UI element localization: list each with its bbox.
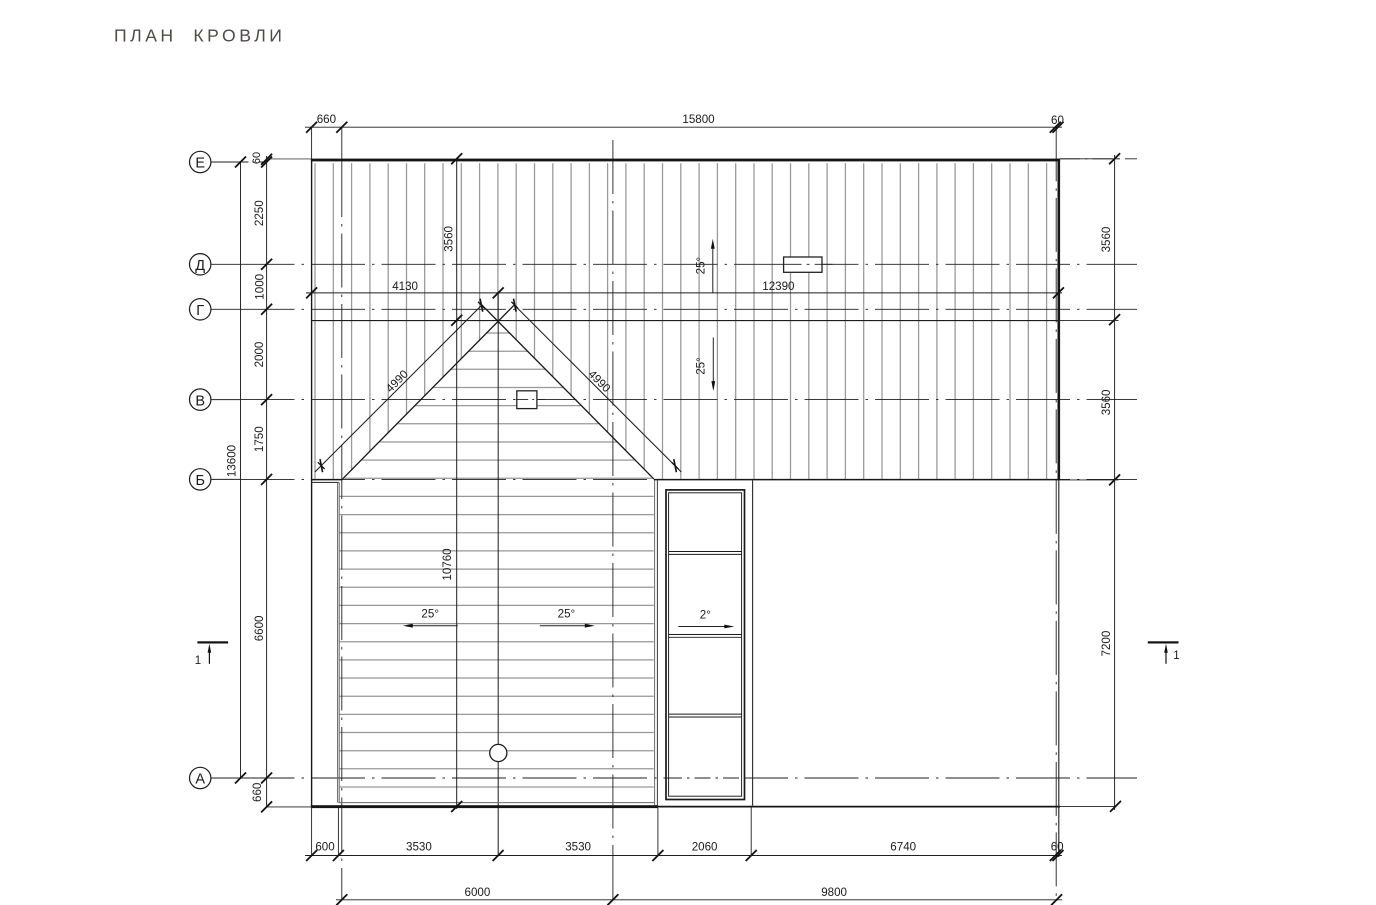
svg-text:1: 1 (195, 655, 201, 667)
svg-text:60: 60 (251, 152, 263, 164)
svg-text:3560: 3560 (1100, 390, 1113, 416)
svg-text:Д: Д (195, 258, 205, 274)
svg-text:7200: 7200 (1100, 631, 1113, 657)
svg-text:3530: 3530 (406, 841, 432, 854)
svg-text:2060: 2060 (692, 841, 718, 854)
svg-text:Б: Б (195, 473, 205, 489)
svg-text:15800: 15800 (682, 113, 714, 126)
svg-text:3560: 3560 (443, 226, 456, 252)
svg-text:10760: 10760 (441, 548, 454, 580)
svg-text:В: В (195, 393, 205, 409)
svg-text:25°: 25° (421, 607, 439, 620)
svg-text:4130: 4130 (392, 280, 418, 293)
svg-text:6600: 6600 (253, 616, 266, 642)
svg-text:2250: 2250 (253, 200, 266, 226)
svg-text:600: 600 (315, 841, 334, 854)
svg-text:12390: 12390 (762, 280, 794, 293)
svg-text:2°: 2° (700, 609, 711, 622)
svg-text:ПЛАН КРОВЛИ: ПЛАН КРОВЛИ (114, 26, 285, 46)
svg-text:6740: 6740 (890, 841, 916, 854)
svg-text:1000: 1000 (254, 274, 267, 300)
svg-text:660: 660 (251, 783, 264, 802)
svg-text:9800: 9800 (821, 886, 847, 899)
svg-text:А: А (195, 772, 205, 788)
svg-text:25°: 25° (695, 257, 708, 275)
svg-text:3530: 3530 (565, 841, 591, 854)
svg-text:Е: Е (195, 156, 205, 172)
svg-text:6000: 6000 (465, 886, 491, 899)
svg-text:60: 60 (1051, 114, 1064, 127)
svg-text:13600: 13600 (226, 445, 239, 477)
svg-text:25°: 25° (695, 357, 708, 375)
svg-text:60: 60 (1051, 840, 1064, 853)
svg-text:3560: 3560 (1100, 227, 1113, 253)
svg-text:25°: 25° (558, 607, 576, 620)
svg-text:1: 1 (1173, 650, 1179, 662)
svg-text:Г: Г (196, 303, 204, 319)
svg-text:1750: 1750 (253, 426, 266, 452)
svg-text:2000: 2000 (253, 342, 266, 368)
svg-text:660: 660 (317, 113, 336, 126)
